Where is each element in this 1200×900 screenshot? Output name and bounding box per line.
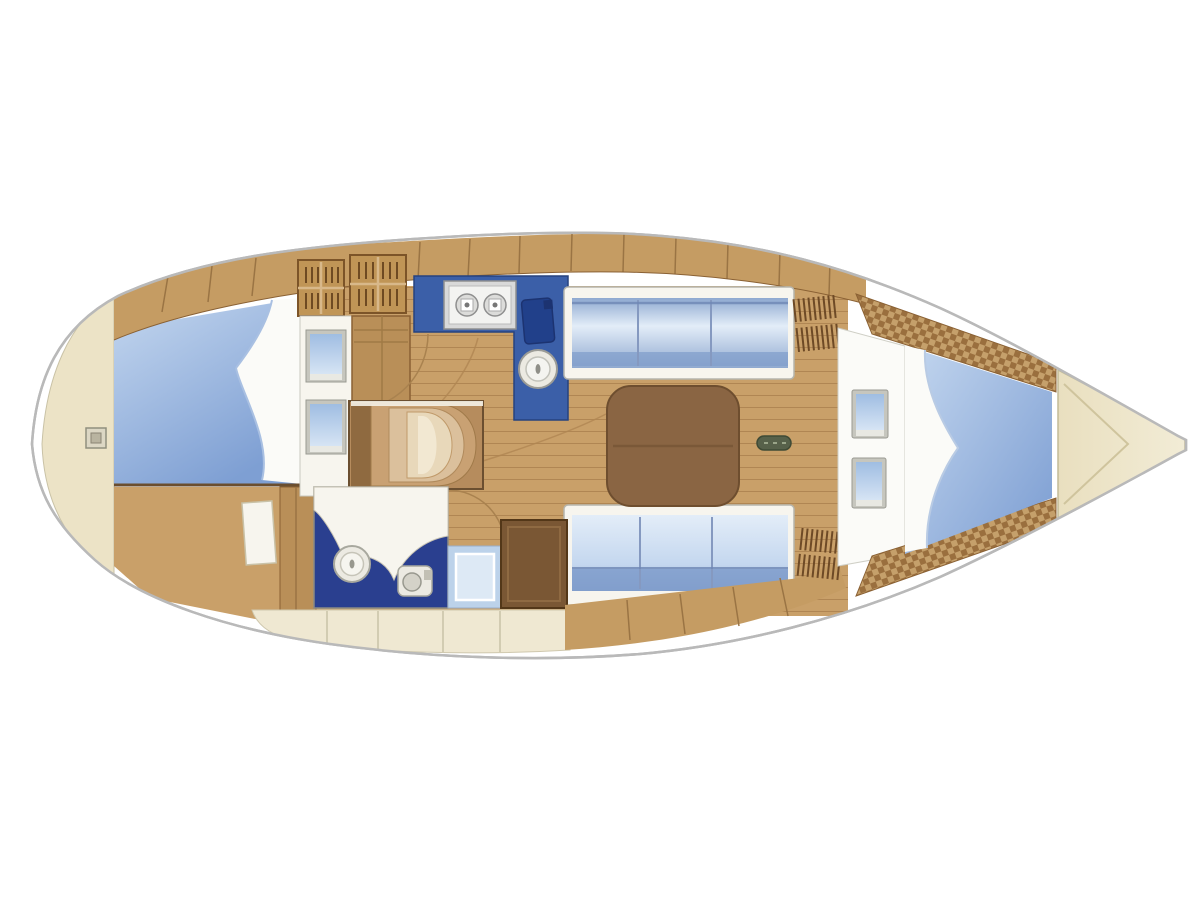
forward-bulkhead <box>838 328 905 566</box>
aft-cabin-door-panel <box>242 501 276 565</box>
stove-burner-2 <box>484 294 506 316</box>
hatch-grille-1 <box>298 260 344 316</box>
wardrobe <box>352 316 410 404</box>
port-settee <box>564 287 794 379</box>
head-compartment <box>314 487 448 608</box>
galley-sink <box>519 350 557 388</box>
bulkhead-window-1 <box>306 330 346 382</box>
boat-floorplan-canvas <box>0 0 1200 900</box>
bulkhead-window-2 <box>306 400 346 454</box>
head-sink <box>334 546 370 582</box>
stern-fitting <box>86 428 106 448</box>
salon-table <box>607 386 739 506</box>
aft-cabin-locker-column <box>280 487 316 611</box>
toilet <box>398 566 432 596</box>
stove-burner-1 <box>456 294 478 316</box>
shower-pan <box>448 546 502 608</box>
galley-basin <box>521 298 556 345</box>
galley-stove <box>444 281 516 329</box>
vberth-cushion-1 <box>852 390 888 438</box>
companionway-steps <box>349 401 483 489</box>
hatch-grille-2 <box>350 255 406 313</box>
vberth-cushion-2 <box>852 458 886 508</box>
storage-cabinet <box>501 520 567 608</box>
floorplan-svg <box>0 0 1200 900</box>
aft-bulkhead-panel <box>300 316 352 496</box>
mast-step <box>757 436 791 450</box>
